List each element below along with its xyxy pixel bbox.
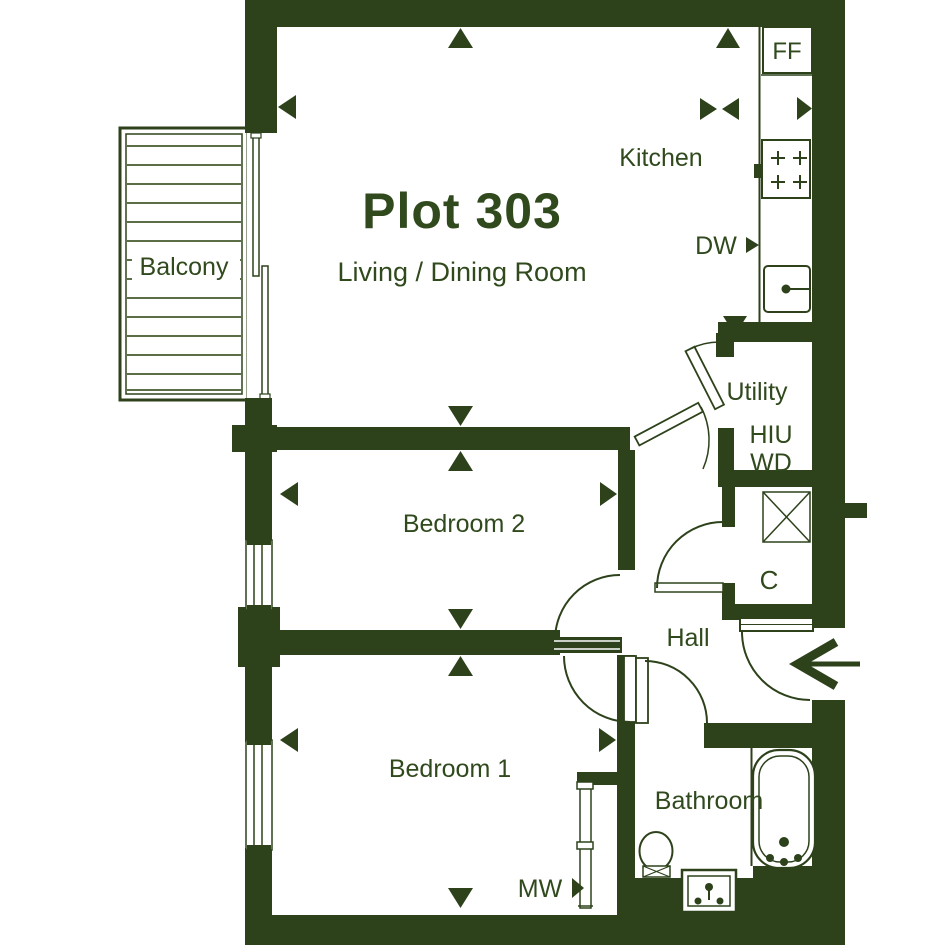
basin-icon bbox=[682, 870, 736, 912]
floor-plan-page: Plot 303 Living / Dining Room Kitchen DW… bbox=[0, 0, 945, 945]
living-room-door bbox=[635, 403, 709, 469]
cupboard-door bbox=[655, 522, 723, 592]
bedroom1-window bbox=[246, 740, 272, 850]
plot-title: Plot 303 bbox=[362, 183, 562, 239]
label-fridge-freezer: FF bbox=[772, 38, 801, 65]
bedroom1-door bbox=[564, 656, 636, 722]
room-label-living: Living / Dining Room bbox=[337, 257, 586, 287]
label-washer-dryer: WD bbox=[750, 449, 792, 477]
bedroom2-door bbox=[552, 575, 622, 653]
balcony-sliding-door bbox=[247, 130, 273, 400]
bathroom-door bbox=[636, 658, 707, 723]
kitchen-counter bbox=[754, 27, 812, 330]
room-label-utility: Utility bbox=[726, 378, 788, 406]
bedroom2-window bbox=[246, 540, 272, 610]
sink-icon bbox=[764, 266, 811, 312]
room-label-kitchen: Kitchen bbox=[619, 144, 702, 172]
entrance-arrow-icon bbox=[798, 642, 860, 686]
cupboard-shelf-icon bbox=[763, 492, 810, 542]
room-label-hall: Hall bbox=[666, 624, 709, 652]
toilet-icon bbox=[640, 832, 673, 877]
label-heat-interface-unit: HIU bbox=[749, 421, 792, 449]
floor-plan: Plot 303 Living / Dining Room Kitchen DW… bbox=[0, 0, 945, 945]
hob-icon bbox=[754, 140, 810, 198]
room-label-bedroom1: Bedroom 1 bbox=[389, 755, 511, 783]
label-dishwasher: DW bbox=[695, 232, 737, 260]
room-label-bathroom: Bathroom bbox=[655, 787, 763, 815]
dishwasher-pointer-icon bbox=[746, 237, 759, 253]
label-microwave: MW bbox=[518, 875, 563, 903]
room-label-cupboard: C bbox=[760, 565, 779, 595]
room-label-bedroom2: Bedroom 2 bbox=[403, 510, 525, 538]
room-label-balcony: Balcony bbox=[140, 253, 229, 281]
